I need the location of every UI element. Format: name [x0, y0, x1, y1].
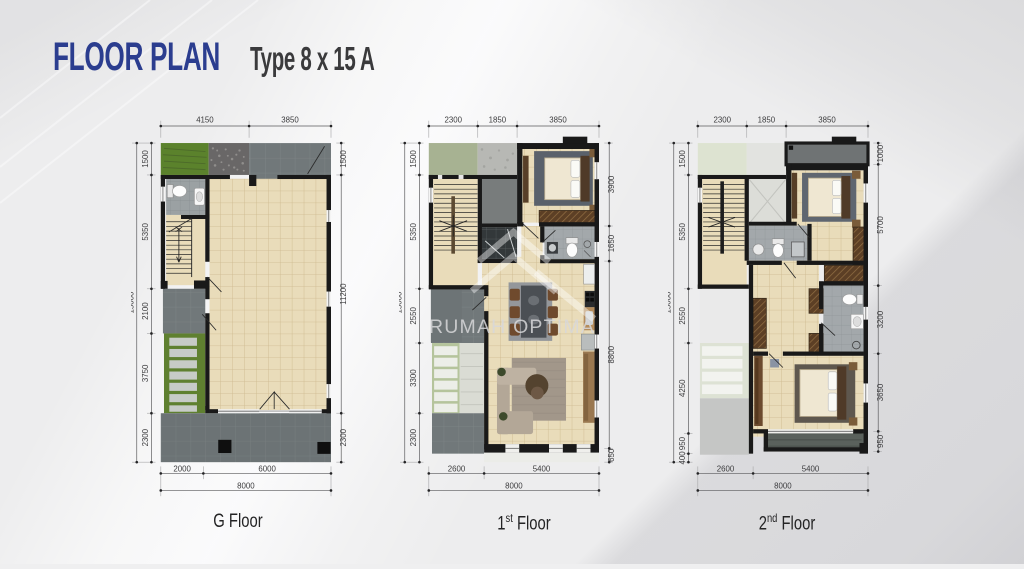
svg-text:3300: 3300	[409, 369, 418, 387]
svg-text:1850: 1850	[758, 116, 776, 125]
svg-text:1500: 1500	[678, 150, 687, 168]
svg-text:5350: 5350	[409, 222, 418, 240]
svg-text:15000: 15000	[399, 291, 403, 313]
svg-text:950: 950	[876, 434, 885, 448]
svg-text:2300: 2300	[445, 116, 463, 125]
svg-text:8000: 8000	[506, 481, 524, 490]
svg-text:3900: 3900	[607, 175, 616, 193]
svg-text:3850: 3850	[281, 116, 299, 125]
svg-text:5350: 5350	[141, 222, 150, 240]
svg-text:4250: 4250	[678, 379, 687, 397]
svg-text:5400: 5400	[533, 464, 551, 473]
svg-text:2300: 2300	[409, 428, 418, 446]
svg-text:1500: 1500	[409, 150, 418, 168]
svg-text:8000: 8000	[237, 481, 255, 490]
svg-text:3200: 3200	[876, 310, 885, 328]
svg-text:2550: 2550	[409, 307, 418, 325]
svg-text:1000: 1000	[876, 144, 885, 162]
svg-text:3850: 3850	[550, 116, 568, 125]
svg-text:3850: 3850	[818, 116, 836, 125]
svg-text:5400: 5400	[802, 464, 820, 473]
svg-text:5350: 5350	[678, 222, 687, 240]
svg-text:2300: 2300	[339, 428, 348, 446]
svg-text:3650: 3650	[876, 383, 885, 401]
svg-text:1650: 1650	[607, 234, 616, 252]
svg-text:11200: 11200	[339, 283, 348, 305]
svg-text:4150: 4150	[196, 116, 214, 125]
svg-text:3750: 3750	[141, 364, 150, 382]
svg-text:2550: 2550	[678, 307, 687, 325]
svg-text:1500: 1500	[339, 150, 348, 168]
svg-text:5700: 5700	[876, 216, 885, 234]
svg-text:2600: 2600	[448, 464, 466, 473]
svg-text:8800: 8800	[607, 345, 616, 363]
svg-text:2000: 2000	[173, 464, 191, 473]
svg-text:2300: 2300	[713, 116, 731, 125]
svg-text:400: 400	[678, 451, 687, 465]
svg-text:15000: 15000	[131, 291, 135, 313]
svg-text:650: 650	[607, 448, 616, 462]
svg-text:2600: 2600	[717, 464, 735, 473]
svg-text:1500: 1500	[141, 150, 150, 168]
svg-text:950: 950	[678, 436, 687, 450]
svg-text:1850: 1850	[489, 116, 507, 125]
svg-text:2300: 2300	[141, 428, 150, 446]
svg-text:8000: 8000	[774, 481, 792, 490]
svg-text:6000: 6000	[258, 464, 276, 473]
svg-text:15000: 15000	[668, 291, 672, 313]
svg-text:2100: 2100	[141, 302, 150, 320]
